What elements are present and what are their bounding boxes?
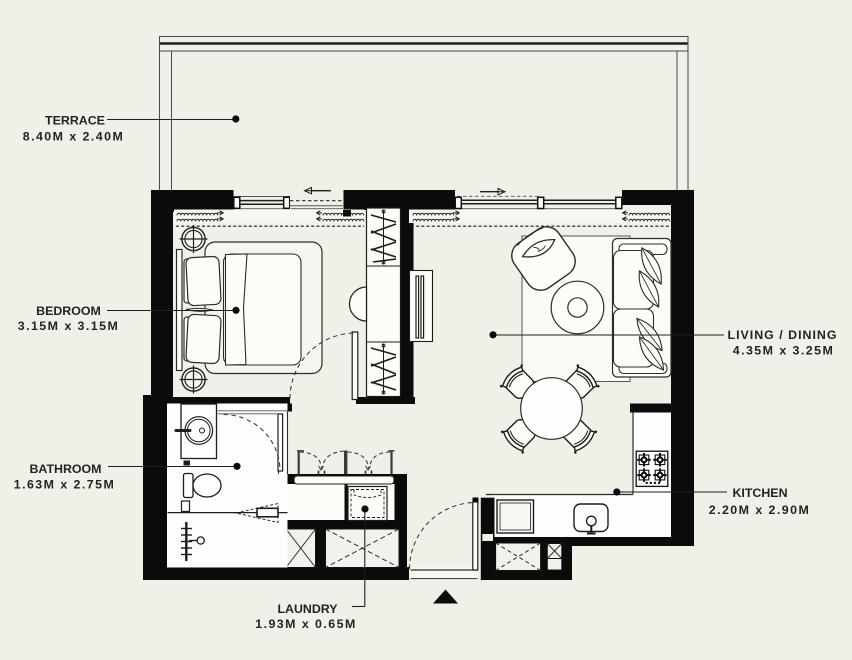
svg-text:8.40M x 2.40M: 8.40M x 2.40M (23, 130, 125, 144)
svg-text:LIVING / DINING: LIVING / DINING (728, 328, 838, 342)
svg-text:BATHROOM: BATHROOM (29, 462, 101, 476)
svg-text:1.93M x 0.65M: 1.93M x 0.65M (255, 617, 357, 631)
svg-text:BEDROOM: BEDROOM (36, 304, 101, 318)
svg-text:TERRACE: TERRACE (45, 114, 105, 128)
svg-text:4.35M x 3.25M: 4.35M x 3.25M (733, 344, 835, 358)
svg-text:KITCHEN: KITCHEN (732, 486, 787, 500)
svg-text:LAUNDRY: LAUNDRY (277, 602, 338, 616)
svg-text:2.20M x 2.90M: 2.20M x 2.90M (709, 503, 811, 517)
svg-text:1.63M x 2.75M: 1.63M x 2.75M (14, 478, 116, 492)
svg-text:3.15M x 3.15M: 3.15M x 3.15M (18, 319, 120, 333)
